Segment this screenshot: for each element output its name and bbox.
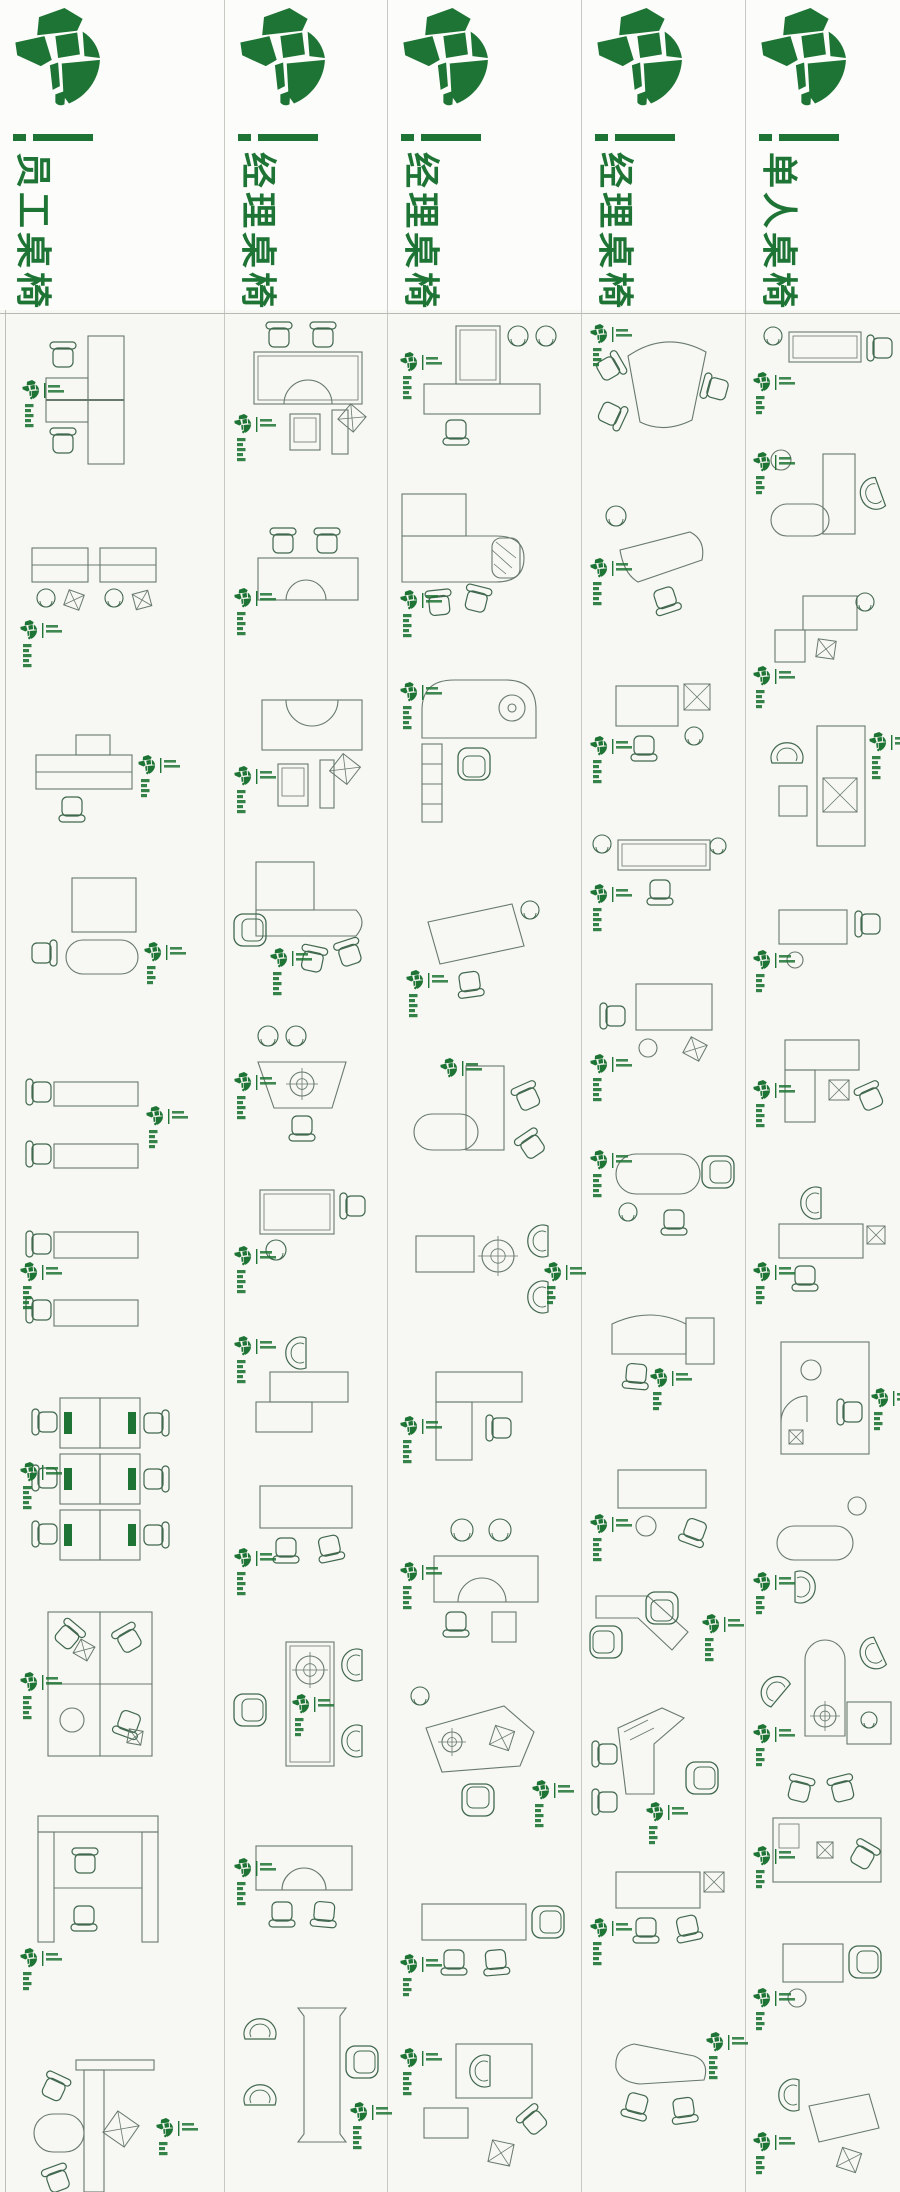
cad-furniture-block (753, 1338, 893, 1476)
office-chair-icon (515, 2102, 551, 2138)
cad-block-drawing (234, 322, 379, 474)
office-chair-icon (513, 1127, 549, 1162)
cad-block-drawing (234, 1478, 379, 1606)
cad-block-drawing (20, 1612, 180, 1774)
desk-rect (262, 700, 362, 750)
office-chair-icon (482, 1949, 510, 1976)
arc-chair-icon (801, 1187, 821, 1219)
cad-furniture-block (20, 735, 180, 847)
hatched-box-icon (823, 778, 857, 812)
office-chair-icon (647, 880, 673, 905)
desk-rect (256, 1402, 312, 1432)
office-chair-icon (595, 398, 629, 432)
watermark-logo (234, 1246, 276, 1293)
watermark-logo (869, 732, 900, 779)
arc-chair-icon (286, 1337, 306, 1369)
watermark-logo (20, 1672, 62, 1719)
desk-rect (260, 1190, 334, 1234)
office-chair-icon (71, 1906, 97, 1931)
cad-block-drawing (400, 1058, 570, 1190)
office-chair-icon (486, 1415, 511, 1441)
cad-furniture-block (753, 1776, 893, 1912)
rounded-desk (66, 940, 138, 974)
watermark-logo (146, 1106, 188, 1148)
desk-path (612, 1315, 686, 1354)
cad-furniture-block (590, 828, 737, 948)
arc-chair-icon (795, 1571, 815, 1603)
hatched-box-icon (867, 1226, 885, 1244)
office-chair-icon (592, 1741, 617, 1767)
cad-block-drawing (400, 1372, 570, 1494)
hatched-box-icon (836, 2147, 861, 2172)
round-stool (801, 1360, 821, 1380)
cad-block-drawing (400, 494, 570, 642)
cad-furniture-block (234, 528, 379, 650)
cad-block-drawing (753, 1186, 893, 1314)
desk-path (422, 680, 536, 738)
header-content-divider-line (0, 313, 900, 314)
round-table-crosshair-icon (286, 1068, 318, 1100)
round-stool (848, 1497, 866, 1515)
office-chair-icon (26, 1297, 51, 1323)
desk-rect (779, 1824, 799, 1848)
arc-chair-icon (528, 1281, 548, 1313)
office-chair-icon (455, 970, 484, 998)
office-chair-icon (441, 1950, 467, 1975)
desk-rect (436, 1372, 522, 1402)
cad-block-drawing (753, 588, 893, 710)
column-items (746, 0, 900, 2192)
office-chair-icon (310, 1901, 338, 1928)
stool-icon (411, 1687, 429, 1705)
office-chair-icon (110, 1621, 145, 1656)
cad-block-drawing (753, 1936, 893, 2052)
cad-block-drawing (20, 878, 180, 1010)
office-chair-icon (50, 342, 76, 367)
desk-rect (436, 1402, 472, 1460)
hatched-box-icon (817, 1842, 833, 1858)
cad-block-drawing (234, 1636, 379, 1800)
cad-block-drawing (753, 1632, 893, 1760)
round-stool (639, 1039, 657, 1057)
arc-chair-icon (856, 477, 886, 514)
hatched-box-icon (338, 404, 366, 432)
cad-furniture-block (20, 332, 180, 470)
office-chair-icon (273, 1538, 299, 1563)
cad-block-drawing (400, 1526, 570, 1656)
cad-furniture-block (590, 1458, 737, 1578)
watermark-logo (590, 1054, 632, 1101)
watermark-logo (144, 942, 186, 984)
watermark-logo (650, 1368, 692, 1410)
desk-rect (616, 686, 678, 726)
desk-rect (38, 1832, 54, 1942)
desk-path (616, 2044, 706, 2084)
cad-block-drawing (234, 1032, 379, 1162)
round-stool (499, 695, 525, 721)
watermark-logo (234, 1548, 276, 1595)
office-chair-icon (510, 1080, 544, 1113)
cad-block-drawing (20, 1398, 180, 1566)
desk-rect (779, 910, 847, 944)
hatched-box-icon (816, 639, 836, 659)
desk-rect (282, 768, 304, 796)
cad-furniture-block (590, 1592, 737, 1700)
desk-rect (492, 1612, 516, 1642)
stool-icon (861, 1712, 877, 1728)
watermark-logo (400, 682, 442, 729)
cad-block-drawing (753, 324, 893, 428)
office-chair-icon (631, 736, 657, 761)
office-chair-icon (792, 1266, 818, 1291)
office-chair-icon (340, 1193, 365, 1219)
desk-rect (256, 862, 314, 910)
cad-furniture-block (234, 1636, 379, 1800)
desk-rect (686, 1318, 714, 1364)
stool-icon (536, 326, 556, 346)
stool-icon (764, 327, 782, 345)
round-table-crosshair-icon (810, 1701, 840, 1731)
watermark-logo (20, 1948, 62, 1990)
desk-rect (416, 1236, 474, 1272)
desk-path (282, 1868, 326, 1890)
desk-rect (783, 1944, 843, 1982)
desk-path (618, 1708, 684, 1794)
cad-block-drawing (590, 1136, 737, 1268)
desk-rect (64, 1412, 72, 1434)
armchair-icon (532, 1906, 564, 1938)
watermark-logo (590, 884, 632, 931)
desk-rect (258, 356, 358, 400)
cad-furniture-block (753, 1632, 893, 1760)
watermark-logo (753, 1724, 795, 1766)
arc-chair-icon (244, 2085, 276, 2105)
armchair-icon (686, 1762, 718, 1794)
stool-icon (685, 727, 703, 745)
desk-rect (422, 744, 442, 822)
cad-block-drawing (20, 1808, 180, 1984)
desk-path (298, 2008, 346, 2142)
office-chair-icon (633, 1918, 659, 1943)
cad-furniture-block (20, 878, 180, 1010)
cad-furniture-block (400, 1372, 570, 1494)
cad-block-drawing (590, 828, 737, 948)
armchair-icon (234, 914, 266, 946)
watermark-logo (753, 1572, 795, 1614)
desk-path (809, 2094, 879, 2142)
arc-chair-icon (855, 1636, 887, 1674)
arc-chair-icon (771, 743, 803, 763)
cad-block-drawing (590, 1298, 737, 1428)
cad-block-drawing (590, 324, 737, 482)
watermark-logo (753, 1988, 795, 2030)
watermark-logo (753, 1080, 795, 1127)
cad-furniture-block (234, 1032, 379, 1162)
desk-rect (781, 1342, 869, 1454)
arc-chair-icon (779, 2079, 799, 2111)
desk-rect (773, 1818, 881, 1882)
cad-furniture-block (753, 588, 893, 710)
desk-rect (785, 1070, 815, 1122)
desk-rect (76, 2060, 154, 2070)
watermark-logo (753, 452, 795, 494)
desk-path (620, 532, 703, 582)
watermark-logo (590, 558, 632, 605)
cad-furniture-block (753, 2066, 893, 2192)
desk-rect (803, 596, 857, 630)
cad-furniture-block (400, 1058, 570, 1190)
desk-rect (76, 735, 110, 755)
office-chair-icon (144, 1522, 169, 1548)
watermark-logo (234, 588, 276, 635)
watermark-logo (138, 755, 180, 797)
desk-rect (424, 384, 540, 414)
cad-block-drawing (590, 1864, 737, 1992)
watermark-logo (706, 2032, 748, 2079)
hatched-box-icon (64, 590, 85, 611)
office-chair-icon (72, 1848, 98, 1873)
cad-block-drawing (753, 1776, 893, 1912)
watermark-logo (590, 736, 632, 783)
desk-rect (402, 494, 466, 536)
cad-block-drawing (234, 1336, 379, 1448)
watermark-logo (406, 970, 448, 1017)
desk-rect (779, 786, 807, 816)
desk-rect (64, 1468, 72, 1490)
round-table-crosshair-icon (438, 1728, 466, 1756)
stool-icon (606, 506, 626, 526)
cad-furniture-block (234, 1478, 379, 1606)
stool-icon (710, 838, 726, 854)
office-chair-icon (846, 1837, 881, 1872)
desk-rect (775, 630, 805, 662)
armchair-icon (458, 748, 490, 780)
cad-furniture-block (400, 1896, 570, 2014)
watermark-logo (590, 1918, 632, 1965)
round-stool (60, 1708, 84, 1732)
watermark-logo (20, 1262, 62, 1309)
watermark-logo (871, 1388, 900, 1430)
desk-rect (823, 454, 855, 534)
cad-block-drawing (20, 735, 180, 847)
cad-block-drawing (753, 1338, 893, 1476)
cad-furniture-block (590, 976, 737, 1108)
rounded-desk (777, 1526, 853, 1560)
arc-chair-icon (755, 1670, 791, 1708)
cad-block-drawing (20, 1228, 180, 1354)
watermark-logo (753, 2132, 795, 2174)
cad-furniture-block (400, 1222, 570, 1342)
round-table-crosshair-icon (478, 1236, 518, 1276)
office-chair-icon (622, 1363, 650, 1390)
desk-rect (424, 2108, 468, 2138)
office-chair-icon (270, 528, 296, 553)
desk-rect (270, 1372, 348, 1402)
desk-rect (128, 1468, 136, 1490)
cad-block-drawing (234, 528, 379, 650)
desk-rect (847, 1702, 891, 1744)
cad-block-drawing (590, 1706, 737, 1832)
hatched-box-icon (683, 1037, 707, 1061)
hatched-box-icon (132, 590, 152, 610)
watermark-logo (234, 414, 276, 461)
office-chair-icon (32, 1409, 57, 1435)
cad-block-drawing (234, 700, 379, 832)
desk-rect (64, 1524, 72, 1546)
cad-block-drawing (234, 2006, 379, 2192)
watermark-logo (590, 1150, 632, 1197)
arc-chair-icon (342, 1725, 362, 1757)
desk-rect (278, 764, 308, 806)
stool-icon (856, 593, 874, 611)
cad-furniture-block (234, 1832, 379, 1958)
cad-block-drawing (753, 896, 893, 1014)
office-chair-icon (289, 1116, 315, 1141)
hatched-box-icon (704, 1872, 724, 1892)
desk-path (781, 1396, 807, 1422)
office-chair-icon (32, 1521, 57, 1547)
cad-furniture-block (234, 1188, 379, 1306)
cad-furniture-block (590, 2024, 737, 2192)
desk-path (286, 700, 338, 726)
cad-block-drawing (590, 678, 737, 800)
office-chair-icon (26, 1141, 51, 1167)
column-items (0, 0, 224, 2192)
catalog-column-manager-desks-3: 经理桌椅 (582, 0, 746, 2192)
cad-block-drawing (753, 1492, 893, 1618)
cad-block-drawing (20, 332, 180, 470)
desk-rect (128, 1412, 136, 1434)
watermark-logo (22, 380, 64, 427)
office-chair-icon (50, 428, 76, 453)
cad-block-drawing (400, 1688, 570, 1866)
desk-rect (460, 330, 496, 380)
desk-rect (789, 332, 861, 362)
cad-block-drawing (400, 898, 570, 1024)
watermark-logo (590, 1514, 632, 1561)
desk-path (628, 342, 706, 428)
cad-furniture-block (234, 700, 379, 832)
desk-rect (456, 2044, 532, 2098)
cad-block-drawing (400, 1896, 570, 2014)
cad-block-drawing (400, 326, 570, 466)
cad-furniture-block (590, 1864, 737, 1992)
office-chair-icon (661, 1210, 687, 1235)
watermark-logo (292, 1694, 334, 1736)
desk-rect (54, 1144, 138, 1168)
watermark-logo (20, 620, 62, 667)
cad-furniture-block (753, 324, 893, 428)
desk-path (286, 580, 326, 600)
office-chair-icon (59, 797, 85, 822)
stool-icon (593, 835, 611, 853)
office-chair-icon (310, 322, 336, 347)
round-stool (771, 450, 791, 470)
rounded-desk (771, 504, 829, 536)
cad-furniture-block (400, 326, 570, 466)
cad-block-drawing (234, 862, 379, 1000)
desk-path (428, 904, 524, 964)
watermark-logo (440, 1058, 482, 1077)
desk-rect (38, 1816, 158, 1832)
cad-block-drawing (590, 976, 737, 1108)
arc-chair-icon (470, 2055, 490, 2087)
armchair-icon (590, 1626, 622, 1658)
office-chair-icon (26, 1079, 51, 1105)
armchair-icon (462, 1784, 494, 1816)
cad-furniture-block (590, 512, 737, 640)
round-table-crosshair-icon (292, 1652, 328, 1688)
desk-rect (54, 1082, 138, 1106)
desk-rect (260, 1486, 352, 1528)
desk-rect (779, 1224, 863, 1258)
cad-furniture-block (20, 1080, 180, 1198)
cad-block-drawing (234, 1188, 379, 1306)
stool-icon (258, 1026, 278, 1046)
desk-rect (434, 1556, 538, 1602)
cad-furniture-block (590, 324, 737, 482)
cad-furniture-block (400, 1688, 570, 1866)
office-chair-icon (32, 940, 57, 966)
cad-block-drawing (400, 676, 570, 856)
cad-block-drawing (590, 2024, 737, 2192)
stool-icon (286, 1026, 306, 1046)
desk-rect (54, 1232, 138, 1258)
desk-rect (54, 1300, 138, 1326)
stool-icon (619, 1203, 637, 1221)
rounded-desk (414, 1114, 478, 1150)
cad-furniture-block (20, 1228, 180, 1354)
office-chair-icon (443, 1612, 469, 1637)
office-chair-icon (144, 1410, 169, 1436)
armchair-icon (702, 1156, 734, 1188)
office-chair-icon (826, 1773, 857, 1804)
desk-rect (422, 1904, 526, 1940)
cad-furniture-block (753, 1036, 893, 1162)
office-chair-icon (333, 936, 365, 968)
office-chair-icon (592, 1789, 617, 1815)
watermark-logo (400, 1954, 442, 1996)
cad-furniture-block (753, 442, 893, 574)
office-chair-icon (855, 911, 880, 937)
cad-block-drawing (753, 442, 893, 574)
desk-rect (785, 1040, 859, 1070)
office-chair-icon (673, 1914, 704, 1944)
watermark-logo (350, 2102, 392, 2149)
hatched-box-icon (684, 684, 710, 710)
hatched-box-icon (489, 1725, 514, 1750)
cad-block-drawing (590, 1592, 737, 1700)
office-chair-icon (600, 1003, 625, 1029)
desk-rect (142, 1832, 158, 1942)
hatched-box-icon (488, 2140, 514, 2166)
cad-block-drawing (753, 726, 893, 874)
cad-furniture-block (20, 2058, 180, 2192)
hatched-box-icon (789, 1430, 803, 1444)
watermark-logo (400, 2048, 442, 2095)
armchair-icon (849, 1946, 881, 1978)
cad-block-drawing (20, 2058, 180, 2192)
office-chair-icon (784, 1773, 815, 1804)
arc-chair-icon (244, 2019, 276, 2039)
watermark-logo (156, 2118, 198, 2155)
office-chair-icon (40, 2162, 73, 2192)
cad-block-drawing (753, 2066, 893, 2192)
office-chair-icon (620, 2091, 652, 2122)
desk-rect (264, 1194, 330, 1230)
column-items (388, 0, 581, 2192)
office-chair-icon (266, 322, 292, 347)
